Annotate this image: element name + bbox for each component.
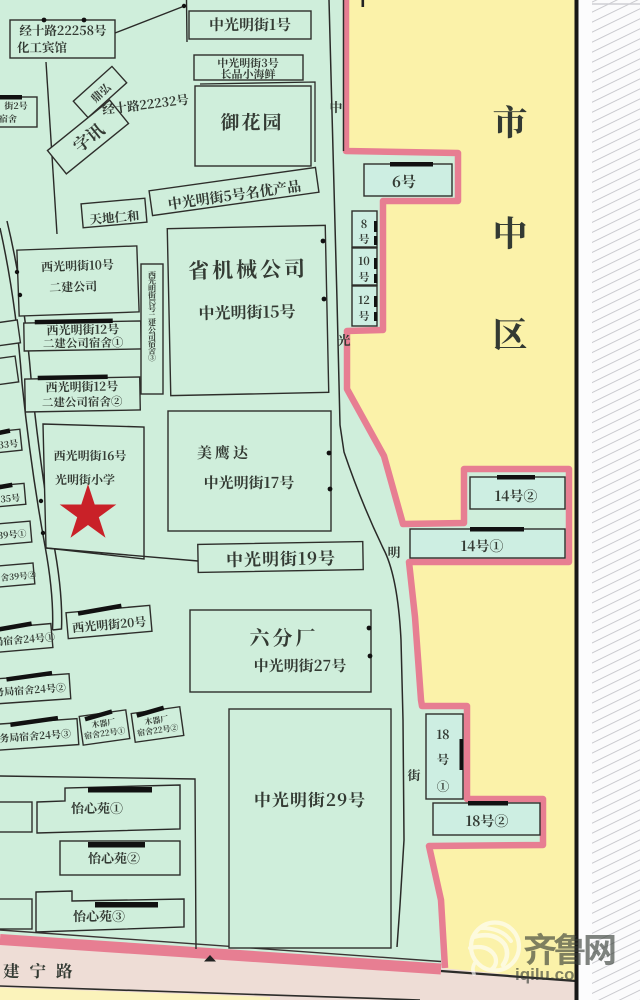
svg-text:号: 号 (359, 308, 370, 324)
svg-text:中光明街27号: 中光明街27号 (254, 655, 347, 676)
svg-text:33号: 33号 (0, 437, 19, 452)
svg-text:西光明街12号二建公司宿舍③: 西光明街12号二建公司宿舍③ (147, 270, 158, 362)
svg-text:长品小海鲜: 长品小海鲜 (221, 66, 276, 82)
svg-text:建宁路: 建宁路 (3, 958, 83, 982)
svg-text:区: 区 (492, 308, 527, 358)
svg-text:光: 光 (337, 330, 350, 349)
svg-text:18号②: 18号② (466, 811, 509, 831)
svg-text:怡心苑②: 怡心苑② (88, 848, 140, 867)
svg-text:省机械公司: 省机械公司 (188, 253, 309, 286)
svg-text:35号: 35号 (0, 491, 21, 506)
svg-text:街: 街 (407, 765, 420, 784)
svg-text:中光明街29号: 中光明街29号 (254, 786, 366, 811)
svg-text:二建公司: 二建公司 (49, 277, 98, 296)
svg-text:iqilu.co: iqilu.co (515, 965, 575, 984)
svg-text:8: 8 (361, 216, 368, 232)
svg-text:市: 市 (492, 96, 527, 146)
svg-text:中光明街19号: 中光明街19号 (226, 544, 336, 571)
svg-text:39号①: 39号① (0, 526, 27, 541)
svg-text:怡心苑①: 怡心苑① (71, 798, 123, 817)
svg-text:中: 中 (329, 97, 342, 116)
svg-text:明: 明 (387, 542, 400, 561)
svg-text:二建公司宿舍①: 二建公司宿舍① (43, 334, 124, 351)
svg-text:6号: 6号 (392, 171, 416, 192)
svg-text:街2号: 街2号 (4, 99, 27, 112)
svg-text:12: 12 (358, 292, 370, 308)
svg-text:号: 号 (359, 269, 370, 285)
svg-text:美鹰达: 美鹰达 (197, 442, 251, 463)
svg-text:中光明街1号: 中光明街1号 (209, 14, 291, 35)
svg-text:六分厂: 六分厂 (250, 622, 319, 651)
svg-text:光明街小学: 光明街小学 (55, 471, 115, 488)
svg-text:中: 中 (492, 207, 527, 257)
svg-text:中光明街17号: 中光明街17号 (204, 472, 295, 493)
svg-text:10: 10 (358, 253, 370, 269)
svg-text:怡心苑③: 怡心苑③ (73, 906, 125, 925)
svg-text:号: 号 (359, 231, 370, 247)
svg-text:经十路22258号: 经十路22258号 (19, 21, 107, 39)
svg-text:御花园: 御花园 (220, 108, 283, 135)
svg-text:西光明街16号: 西光明街16号 (54, 447, 127, 464)
svg-text:宿舍: 宿舍 (0, 112, 17, 125)
svg-text:①: ① (437, 777, 450, 795)
svg-text:号: 号 (437, 750, 450, 768)
svg-text:中光明街15号: 中光明街15号 (198, 299, 295, 324)
svg-text:化工宾馆: 化工宾馆 (17, 38, 68, 56)
svg-text:二建公司宿舍②: 二建公司宿舍② (42, 393, 123, 410)
svg-text:14号①: 14号① (461, 536, 504, 556)
svg-text:18: 18 (436, 725, 449, 743)
svg-text:14号②: 14号② (495, 486, 538, 506)
svg-text:西光明街10号: 西光明街10号 (41, 256, 114, 276)
